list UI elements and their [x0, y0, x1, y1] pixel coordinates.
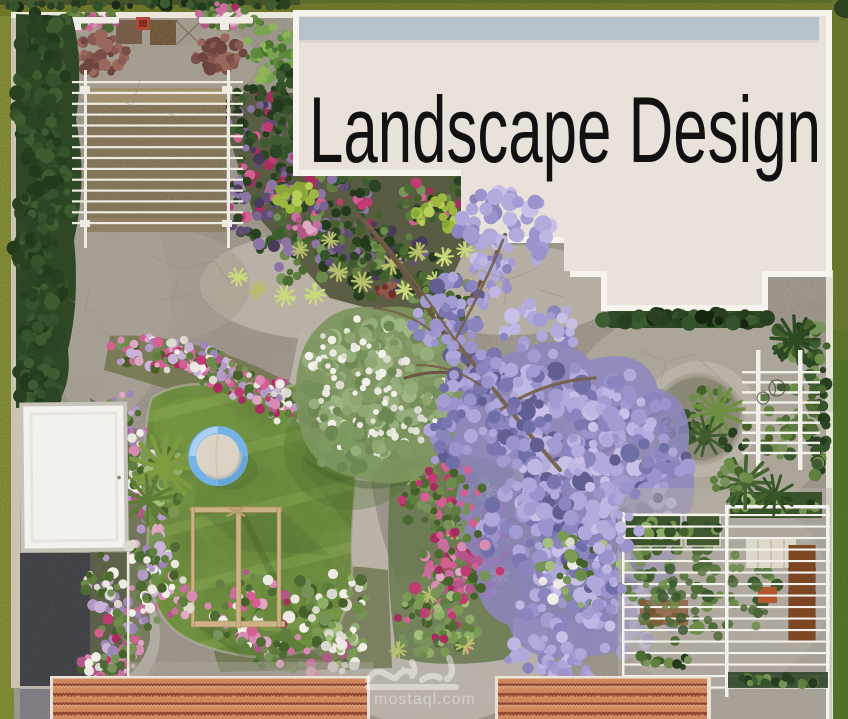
svg-text:Landscape Design: Landscape Design	[309, 77, 821, 182]
svg-text:mostaql.com: mostaql.com	[374, 691, 476, 708]
